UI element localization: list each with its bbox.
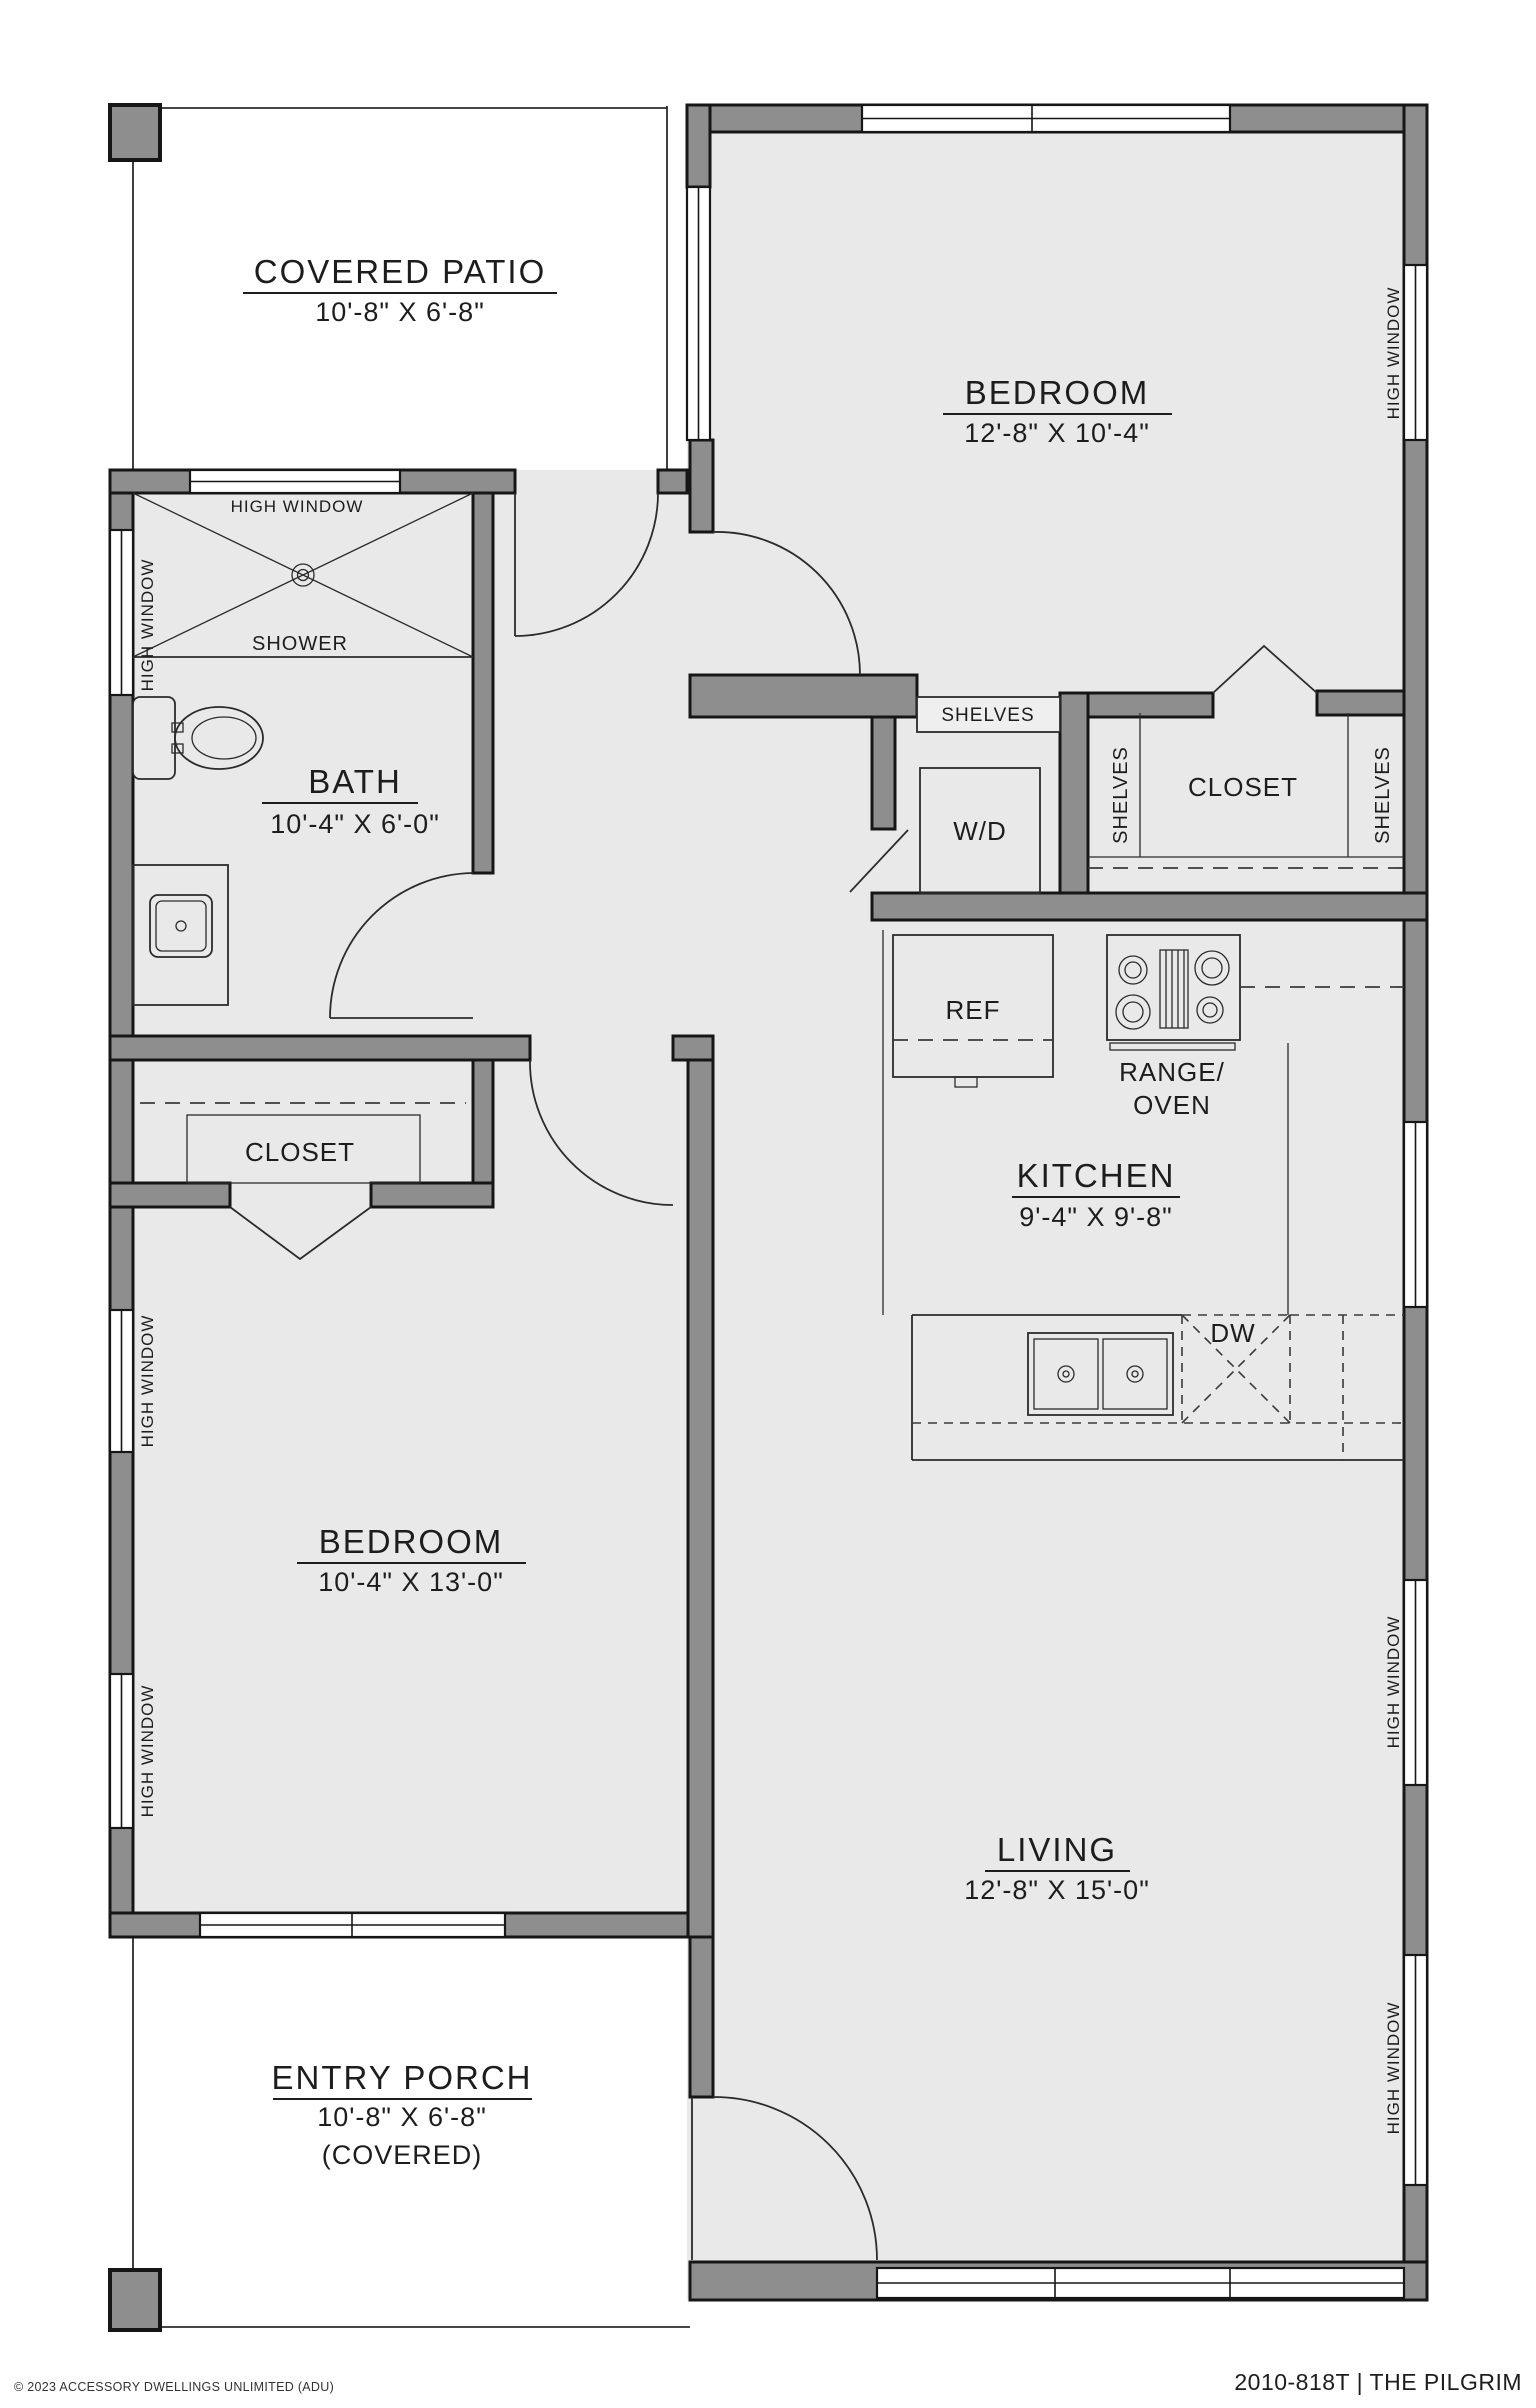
high-window-bath-west: HIGH WINDOW <box>138 559 157 692</box>
copyright-text: © 2023 ACCESSORY DWELLINGS UNLIMITED (AD… <box>14 2380 334 2394</box>
plan-title-text: 2010-818T | THE PILGRIM <box>1234 2369 1522 2395</box>
closet1-shelves-left-label: SHELVES <box>1110 746 1132 844</box>
bedroom2-dims: 10'-4" X 13'-0" <box>318 1567 504 1597</box>
shower-label: SHOWER <box>252 633 348 655</box>
window-living-east-upper <box>1404 1580 1427 1785</box>
window-bath-west <box>110 530 133 695</box>
living-dims: 12'-8" X 15'-0" <box>964 1875 1150 1905</box>
wall-bath-bedroom2-divider <box>110 1036 530 1060</box>
wall-wd-closet1-divider <box>1060 693 1088 895</box>
wall-bedroom1-west-stub <box>690 440 713 532</box>
high-window-living-lower: HIGH WINDOW <box>1384 2002 1403 2135</box>
living-name: LIVING <box>997 1831 1117 1868</box>
window-bedroom1-north <box>862 105 1230 132</box>
range-label-1: RANGE/ <box>1119 1057 1225 1087</box>
window-kitchen-east <box>1404 1122 1427 1307</box>
dw-label: DW <box>1210 1318 1255 1348</box>
high-window-bedroom1-east: HIGH WINDOW <box>1384 287 1403 420</box>
wall-bedroom1-south <box>690 675 917 717</box>
wall-kitchen-north <box>872 893 1427 920</box>
high-window-living-upper: HIGH WINDOW <box>1384 1616 1403 1749</box>
bath-name: BATH <box>308 763 402 800</box>
porch-boundary <box>133 1937 690 2327</box>
wall-porch-divider <box>690 1937 713 2097</box>
title-block: © 2023 ACCESSORY DWELLINGS UNLIMITED (AD… <box>14 2369 1522 2395</box>
window-shower-north <box>190 470 400 493</box>
high-window-bedroom2-lower: HIGH WINDOW <box>138 1685 157 1818</box>
wall-bath-east <box>473 493 493 873</box>
wall-hall-north-stub <box>658 470 687 493</box>
closet1-shelves-right-label: SHELVES <box>1372 746 1394 844</box>
ref-label: REF <box>946 995 1001 1025</box>
window-bedroom1-east <box>1404 265 1427 440</box>
wall-closet2-south-left <box>110 1183 230 1207</box>
bedroom2-name: BEDROOM <box>319 1523 504 1560</box>
window-living-south <box>877 2268 1404 2298</box>
entry-porch-name: ENTRY PORCH <box>272 2059 533 2096</box>
porch-post <box>110 2270 160 2330</box>
covered-patio-dims: 10'-8" X 6'-8" <box>315 297 485 327</box>
patio-post <box>110 105 160 160</box>
window-bedroom1-west <box>687 187 710 440</box>
wd-label: W/D <box>953 816 1007 846</box>
window-living-east-lower <box>1404 1955 1427 2185</box>
wall-closet2-south-right <box>371 1183 493 1207</box>
label-covered-patio: COVERED PATIO 10'-8" X 6'-8" <box>243 253 557 327</box>
high-window-bedroom2-upper: HIGH WINDOW <box>138 1315 157 1448</box>
bedroom1-dims: 12'-8" X 10'-4" <box>964 418 1150 448</box>
high-window-shower-label: HIGH WINDOW <box>231 497 364 516</box>
window-bedroom2-west-lower <box>110 1674 133 1828</box>
closet1-label: CLOSET <box>1188 772 1298 802</box>
floor-plan-page: COVERED PATIO 10'-8" X 6'-8" BEDROOM 12'… <box>0 0 1536 2408</box>
entry-porch-dims: 10'-8" X 6'-8" <box>317 2102 487 2132</box>
wall-closet1-north-right <box>1317 691 1404 715</box>
label-entry-porch: ENTRY PORCH 10'-8" X 6'-8" (COVERED) <box>272 2059 533 2170</box>
wall-bedroom2-door-corner <box>673 1036 713 1060</box>
bedroom1-name: BEDROOM <box>965 374 1150 411</box>
closet2-label: CLOSET <box>245 1137 355 1167</box>
wall-bedroom2-east <box>688 1060 713 1937</box>
covered-patio-name: COVERED PATIO <box>254 253 546 290</box>
kitchen-dims: 9'-4" X 9'-8" <box>1019 1202 1173 1232</box>
bath-dims: 10'-4" X 6'-0" <box>270 809 440 839</box>
kitchen-name: KITCHEN <box>1017 1157 1176 1194</box>
entry-porch-note: (COVERED) <box>322 2140 483 2170</box>
floor-plan-drawing: COVERED PATIO 10'-8" X 6'-8" BEDROOM 12'… <box>0 0 1536 2408</box>
wall-bedroom1-west-corner <box>687 105 710 187</box>
range-label-2: OVEN <box>1133 1090 1211 1120</box>
shelves-niche-label: SHELVES <box>941 705 1034 726</box>
floors <box>110 105 1427 2300</box>
window-bedroom2-west-upper <box>110 1310 133 1452</box>
window-bedroom2-south <box>200 1913 505 1937</box>
wall-wd-west <box>872 717 895 829</box>
wall-closet1-north-left <box>1073 693 1213 717</box>
